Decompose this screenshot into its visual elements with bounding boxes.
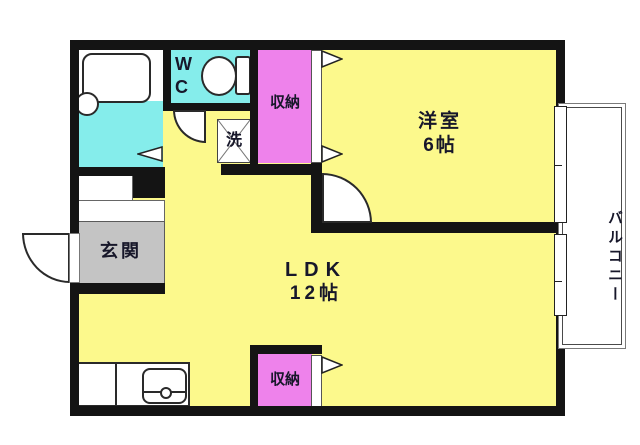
window-western-room [554, 106, 567, 223]
wall-closet-lower-top [250, 345, 322, 354]
closet-upper-arrow-bottom-icon [321, 145, 343, 163]
wall-entry-corner [133, 167, 165, 198]
wall-westroom-vertical [311, 163, 322, 223]
wall-closet-lower-left [250, 345, 258, 407]
entrance-door-swing-icon [22, 233, 70, 283]
entrance-door-opening [69, 233, 80, 283]
ldk-size: 12帖 [270, 283, 362, 305]
wc-label: W C [175, 53, 201, 99]
wall-left-upper [70, 40, 79, 233]
western-room-name: 洋室 [398, 111, 482, 133]
ldk-name: LDK [270, 259, 362, 282]
closet-upper-label: 収納 [261, 94, 309, 111]
wall-entry-bottom [70, 283, 165, 294]
counter-divider [115, 364, 117, 405]
balcony: バルコニー [558, 103, 626, 349]
balcony-label: バルコニー [559, 162, 625, 352]
bath-door-swing-icon [137, 146, 163, 162]
wall-top [70, 40, 565, 50]
entrance-cabinet-upper [77, 175, 133, 201]
laundry-label: 洗 [218, 132, 250, 150]
toilet-tank [235, 56, 251, 95]
closet-lower-label: 収納 [261, 371, 309, 388]
window-pane-line [555, 165, 562, 166]
wall-left-lower [70, 283, 79, 416]
western-room-size: 6帖 [398, 135, 482, 157]
entrance-label: 玄関 [77, 241, 165, 262]
closet-upper-arrow-top-icon [321, 50, 343, 68]
toilet-bowl [201, 56, 237, 96]
wall-bath-wc [163, 48, 171, 110]
kitchen-sink [142, 368, 187, 404]
entrance-cabinet-lower [77, 200, 165, 222]
kitchen-counter [75, 362, 190, 407]
laundry-box: 洗 [217, 119, 251, 163]
wall-ldk-westroom [311, 222, 556, 233]
wall-under-closet [221, 164, 322, 175]
wall-mid-vertical [250, 48, 258, 175]
wall-bottom [70, 406, 565, 416]
floor-plan: W C 収納 洗 玄関 収納 [0, 0, 640, 445]
window-pane-line [555, 281, 562, 282]
sink-drain-icon [160, 387, 172, 399]
closet-lower-arrow-icon [321, 356, 343, 374]
window-ldk [554, 234, 567, 316]
